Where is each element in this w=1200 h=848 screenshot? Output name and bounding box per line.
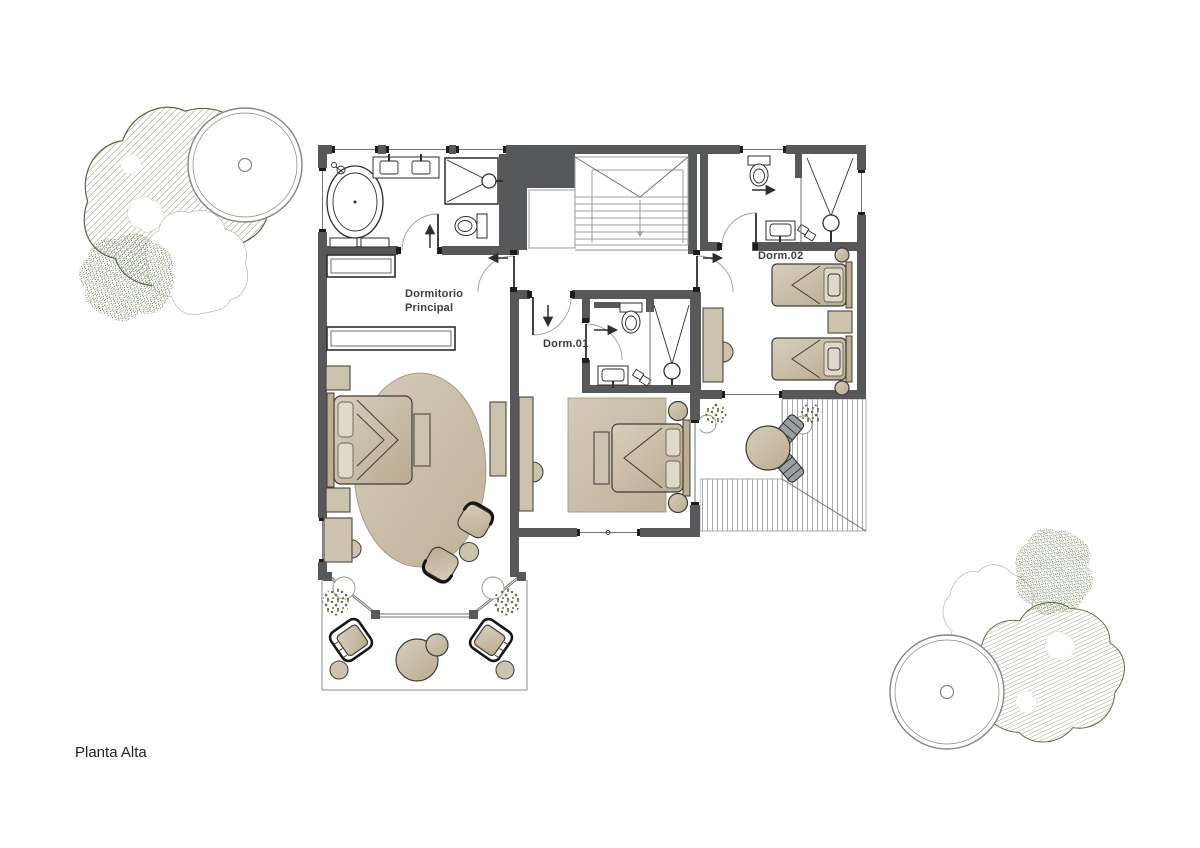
foot-bench [414,414,430,466]
side-table [496,661,514,679]
tree-cluster-top-left [65,107,302,339]
window [722,390,782,399]
wardrobe-long [327,327,455,350]
wall-segment [449,145,456,154]
terrace-deck-right [698,399,866,531]
wall-segment [857,145,866,170]
sink-dorm02 [766,221,795,242]
side-table [330,661,348,679]
pillow [338,402,353,437]
terrace-planter-right [482,577,521,616]
label-bedroom1: Dorm.01 [543,338,588,350]
headboard [846,336,852,382]
towel-basket-icon [797,224,815,241]
tree-cluster-bottom-right [890,513,1140,762]
wall-segment [700,154,708,242]
tree-trunk [941,686,954,699]
window [690,420,700,505]
wardrobe-north [327,255,395,277]
window [456,145,506,154]
shower-master [445,158,503,204]
round-nightstand [669,494,688,513]
wall-mass [499,154,575,250]
pillow [666,429,680,456]
stair-diagonal [640,157,688,197]
label-master-bedroom-line1: Dormitorio [405,288,463,300]
side-table [460,543,479,562]
window [332,145,378,154]
wall-segment [857,215,866,399]
door-dorm01 [527,291,575,335]
planter-bush [801,404,822,425]
wall-segment [692,292,701,399]
wall-segment [640,528,700,537]
wall-stub [795,154,802,178]
tree-trunk [239,159,252,172]
shower-head [664,363,680,379]
floor-plan-page: Dormitorio Principal Dorm.01 Dorm.02 Pla… [0,0,1200,848]
stair-diagonal [575,157,640,197]
desk-dorm02 [703,308,733,382]
bed-dorm01 [612,420,690,496]
bathroom-dorm01 [598,303,689,388]
bay-post [469,610,478,619]
window [386,145,449,154]
nightstand [326,488,350,512]
terrace-small-table [426,634,448,656]
tree-round-canopy [188,108,302,222]
stair-landing [529,190,575,248]
headboard [327,393,334,487]
twin-bed-north [772,262,852,308]
wall-segment [688,154,697,254]
bay-post [371,610,380,619]
label-bedroom2: Dorm.02 [758,250,803,262]
toilet-dorm01 [620,303,642,333]
wall-segment [692,390,722,399]
lamp [835,381,849,395]
lounge-chair-left [327,616,374,663]
planter-bush [494,589,521,616]
label-master-bedroom-line2: Principal [405,302,453,314]
planter-bush [323,589,350,616]
plan-title: Planta Alta [75,744,147,761]
lounge-chair-right [467,616,514,663]
toilet-master [455,214,487,238]
nightstand [828,311,852,333]
door-master-bedroom [478,250,517,292]
shower-head [823,215,839,231]
floor-plan-canvas: Dormitorio Principal Dorm.01 Dorm.02 Pla… [0,0,1200,848]
sink-dorm01 [598,366,628,388]
towel-basket-icon [632,369,650,386]
shower-dorm01 [650,303,689,385]
headboard [846,262,852,308]
foot-bench [594,432,609,484]
toilet-dorm02 [748,156,770,186]
wall-segment [378,145,386,154]
window [740,145,786,154]
desk-dorm01 [519,397,543,511]
desk-chair [723,342,733,362]
master-bed [327,393,412,487]
pillow [666,461,680,488]
wall-segment [318,562,327,580]
wall-segment [506,145,740,154]
headboard [683,420,690,496]
desk-chair [352,540,361,558]
tree-round-canopy [890,635,1004,749]
deck-planter-left [698,404,727,434]
round-nightstand [669,402,688,421]
nightstand [326,366,350,390]
shower-head [482,174,496,188]
door-dorm02 [693,250,733,292]
towel-shelf [594,302,620,308]
bench [330,238,357,247]
terrace-master [322,572,527,690]
wall-segment [318,145,327,168]
lamp [835,248,849,262]
door-master-bath [396,214,442,254]
wall-segment [572,290,700,299]
terrace-planter-left [323,577,356,616]
planter-bush [706,404,727,425]
window [577,528,640,537]
wall-segment [582,385,690,393]
desk-chair [533,462,543,482]
window [857,170,866,215]
wall-segment [786,145,866,154]
pillow [338,443,353,478]
wall-segment [782,390,866,399]
console [490,402,506,476]
double-vanity [373,154,439,178]
door-dorm02-bath [717,190,774,250]
master-bathroom [327,154,503,247]
deck-round-table [746,426,790,470]
desk-master [324,518,361,562]
bedroom-1 [519,397,690,513]
twin-bed-south [772,336,852,382]
wall-segment [510,528,577,537]
bench [361,238,389,247]
window [318,168,327,232]
